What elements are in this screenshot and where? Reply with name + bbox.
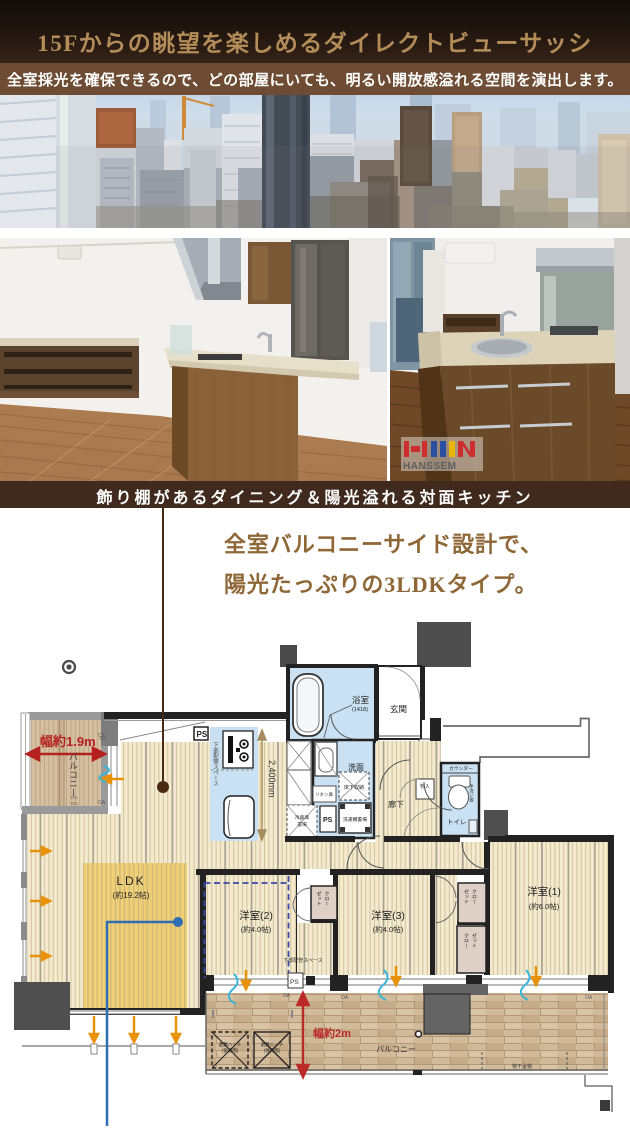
svg-text:洗濯機置場: 洗濯機置場 [343, 816, 367, 823]
svg-text:廊下: 廊下 [388, 799, 404, 809]
svg-text:玄関: 玄関 [390, 704, 407, 714]
svg-text:PS: PS [197, 730, 208, 739]
svg-text:カウンター: カウンター [449, 765, 473, 772]
svg-text:2,400mm: 2,400mm [267, 760, 277, 798]
svg-text:手洗い器: 手洗い器 [469, 783, 475, 804]
svg-text:床下収納: 床下収納 [344, 784, 364, 791]
svg-text:幅約1.9m: 幅約1.9m [40, 734, 96, 749]
svg-text:トイレ: トイレ [447, 819, 467, 826]
svg-text:CS: CS [98, 733, 106, 739]
svg-text:LDK: LDK [116, 874, 145, 888]
svg-text:冷蔵庫: 冷蔵庫 [295, 814, 310, 821]
svg-text:PS: PS [323, 817, 333, 824]
svg-text:OA: OA [71, 801, 78, 806]
svg-text:(1418): (1418) [352, 707, 368, 713]
svg-text:リネン庫: リネン庫 [315, 791, 333, 798]
svg-text:洗面: 洗面 [348, 762, 364, 772]
svg-text:浴室: 浴室 [352, 695, 370, 705]
svg-text:OA: OA [98, 800, 106, 806]
svg-text:洋室(1): 洋室(1) [527, 885, 561, 898]
svg-text:置場: 置場 [297, 821, 307, 828]
svg-text:下部配管スペース: 下部配管スペース [212, 742, 219, 787]
svg-text:HANSSEM: HANSSEM [403, 461, 457, 472]
svg-text:(約19.2帖): (約19.2帖) [113, 890, 150, 900]
svg-text:OA: OA [71, 795, 78, 800]
svg-text:バルコニー: バルコニー [68, 752, 78, 797]
